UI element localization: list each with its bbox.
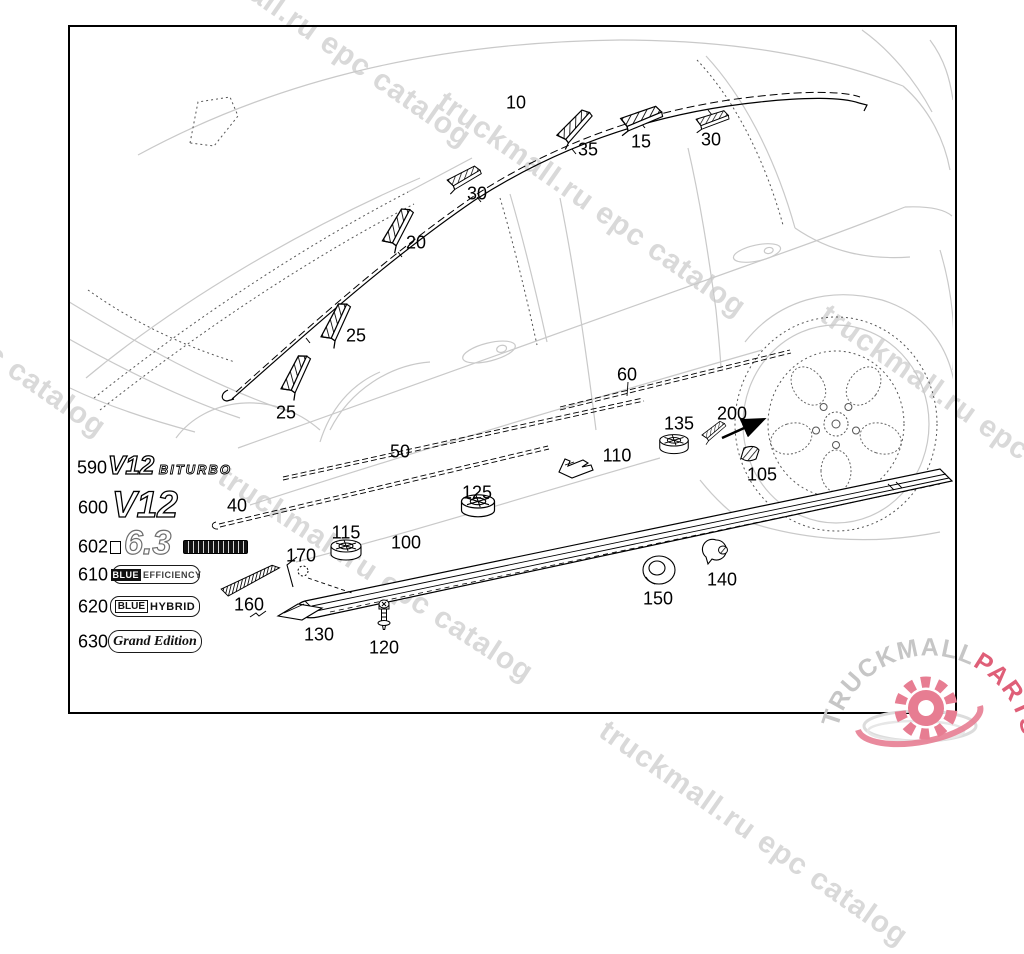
part-callout-120: 120: [369, 638, 399, 659]
front-door-handle: [461, 337, 518, 368]
truckmall-logo: TRUCKMALLPARTS: [828, 610, 1024, 750]
logo-text-secondary: PARTS: [969, 647, 1024, 738]
end-cap-105: [741, 446, 759, 460]
side-mirror: [190, 97, 238, 146]
gear-icon: [895, 677, 957, 739]
part-callout-140: 140: [707, 570, 737, 591]
part-callout-25: 25: [276, 403, 296, 424]
part-callout-150: 150: [643, 589, 673, 610]
clip-25-lower: [276, 352, 319, 400]
screw-120: [378, 600, 390, 630]
badge-63: 6.3: [124, 526, 171, 560]
badge-text: V12: [112, 484, 178, 525]
badge-v12: V12: [112, 486, 178, 523]
badge-blue-hybrid: BLUE HYBRID: [110, 596, 200, 617]
badge-ref-630: 630: [78, 632, 108, 653]
badge-text: BITURBO: [159, 462, 232, 477]
part-callout-30: 30: [701, 130, 721, 151]
part-callout-135: 135: [664, 414, 694, 435]
part-callout-130: 130: [304, 625, 334, 646]
badge-63-amg-strip: [183, 540, 248, 554]
part-callout-15: 15: [631, 132, 651, 153]
badge-text: EFFICIENCY: [143, 570, 202, 580]
part-callout-10: 10: [506, 93, 526, 114]
badge-text: 6.3: [124, 524, 171, 562]
badge-grand-edition: Grand Edition: [108, 630, 202, 653]
part-callout-25: 25: [346, 326, 366, 347]
badge-ref-590: 590: [77, 458, 107, 479]
badge-63-clip: [110, 541, 121, 554]
badge-text: BLUE: [115, 600, 148, 613]
part-callout-40: 40: [227, 496, 247, 517]
badge-ref-620: 620: [78, 597, 108, 618]
car-dotted-lines: [88, 60, 783, 410]
part-callout-60: 60: [617, 365, 637, 386]
badge-text: HYBRID: [150, 601, 195, 613]
badge-v12-biturbo: V12 BITURBO: [108, 452, 232, 479]
badge-160: [220, 563, 283, 597]
badge-blue-efficiency: BLUE EFFICIENCY: [112, 565, 200, 584]
grommet-135: [660, 435, 689, 454]
bracket-110: [559, 459, 593, 478]
badge-ref-600: 600: [78, 498, 108, 519]
logo-swoosh-gray2: [868, 721, 964, 741]
part-callout-125: 125: [462, 483, 492, 504]
badge-text: BLUE: [111, 569, 142, 581]
part-callout-20: 20: [406, 233, 426, 254]
badge-ref-602: 602: [78, 537, 108, 558]
badge-ref-610: 610: [78, 565, 108, 586]
clip-nut-140: [702, 539, 727, 564]
part-callout-160: 160: [234, 595, 264, 616]
part-callout-100: 100: [391, 533, 421, 554]
part-callout-50: 50: [390, 442, 410, 463]
parts-diagram-page: { "watermark": { "text": "truckmall.ru e…: [0, 0, 1024, 750]
part-callout-200: 200: [717, 404, 747, 425]
part-callout-115: 115: [332, 523, 361, 544]
part-callout-30: 30: [467, 184, 487, 205]
part-callout-170: 170: [286, 546, 316, 567]
badge-text: V12: [108, 450, 154, 480]
part-callout-105: 105: [747, 465, 777, 486]
part-callout-110: 110: [603, 446, 632, 467]
grommet-150: [643, 556, 675, 584]
part-callout-35: 35: [578, 140, 598, 161]
badge-text: Grand Edition: [113, 634, 197, 650]
